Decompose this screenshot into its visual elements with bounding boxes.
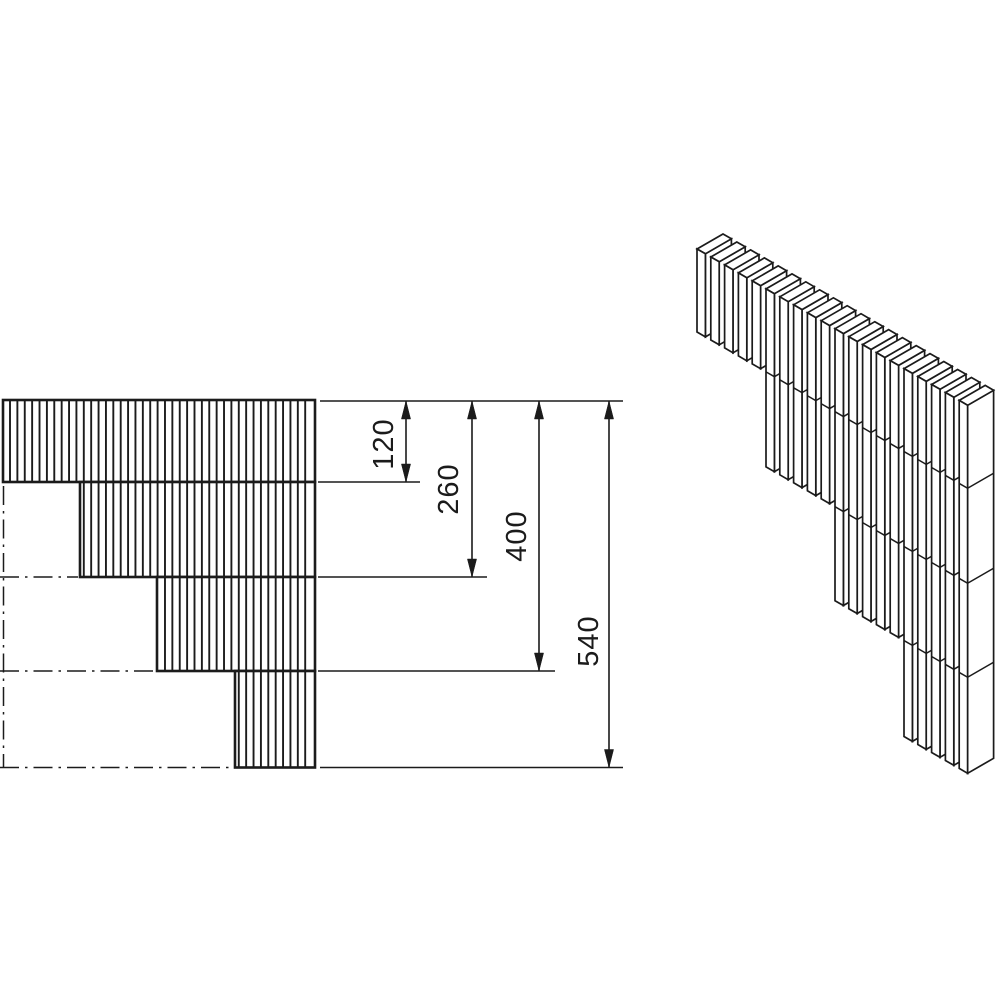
front-view-2d <box>0 400 315 768</box>
isometric-view-3d <box>697 234 994 773</box>
dimension-lines-and-arrows <box>318 401 623 768</box>
technical-drawing-svg: 120 260 400 540 <box>0 0 1000 1000</box>
technical-drawing-canvas: 120 260 400 540 <box>0 0 1000 1000</box>
dimension-label-120: 120 <box>368 418 400 469</box>
hatched-bands <box>3 400 315 768</box>
dimension-set: 120 260 400 540 <box>318 401 623 768</box>
dimension-label-260: 260 <box>433 463 465 514</box>
dimension-label-400: 400 <box>501 510 533 561</box>
dimension-label-540: 540 <box>573 615 605 666</box>
